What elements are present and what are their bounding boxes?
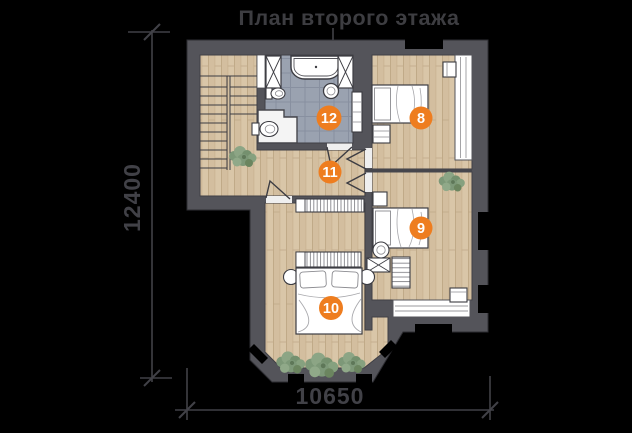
nightstand-9 xyxy=(373,192,387,206)
vent-shaft-right-icon xyxy=(338,56,353,88)
floor-plan-svg: 8 9 10 11 12 План второго этажа 12400 xyxy=(0,0,632,433)
door-gap-bedroom-8 xyxy=(365,148,372,168)
towel-radiator-icon xyxy=(352,92,362,132)
nightstand-8 xyxy=(373,125,390,143)
wardrobe-10-mid xyxy=(296,252,361,267)
svg-text:10: 10 xyxy=(323,301,339,317)
partitions xyxy=(365,169,472,173)
svg-text:9: 9 xyxy=(417,221,425,237)
dimension-vertical-label: 12400 xyxy=(119,163,145,232)
toilet-icon xyxy=(252,122,278,137)
bathtub-icon xyxy=(291,56,341,79)
wall-shelf-8 xyxy=(443,62,456,77)
door-gap-bathroom xyxy=(327,144,352,151)
wardrobe-10-top xyxy=(296,199,364,212)
shelving-9 xyxy=(392,257,410,288)
badge-room-11: 11 xyxy=(319,161,342,184)
door-gap-bedroom-9 xyxy=(365,172,372,192)
badge-room-10: 10 xyxy=(319,296,343,320)
dimension-horizontal-label: 10650 xyxy=(296,383,365,409)
bidet-icon xyxy=(266,88,285,99)
badge-room-9: 9 xyxy=(410,217,433,240)
badge-room-12: 12 xyxy=(317,106,342,131)
page-title: План второго этажа xyxy=(239,6,460,30)
badge-room-8: 8 xyxy=(410,107,433,130)
floor-plan-page: 8 9 10 11 12 План второго этажа 12400 xyxy=(0,0,632,433)
sink-icon xyxy=(324,84,339,99)
svg-text:12: 12 xyxy=(321,111,337,127)
svg-text:11: 11 xyxy=(322,165,337,181)
vent-shaft-left-icon xyxy=(266,56,281,88)
svg-text:8: 8 xyxy=(417,111,425,127)
window-sill-box-9 xyxy=(450,288,467,302)
window-bedroom-8 xyxy=(455,55,472,160)
pouf-9 xyxy=(373,242,389,258)
